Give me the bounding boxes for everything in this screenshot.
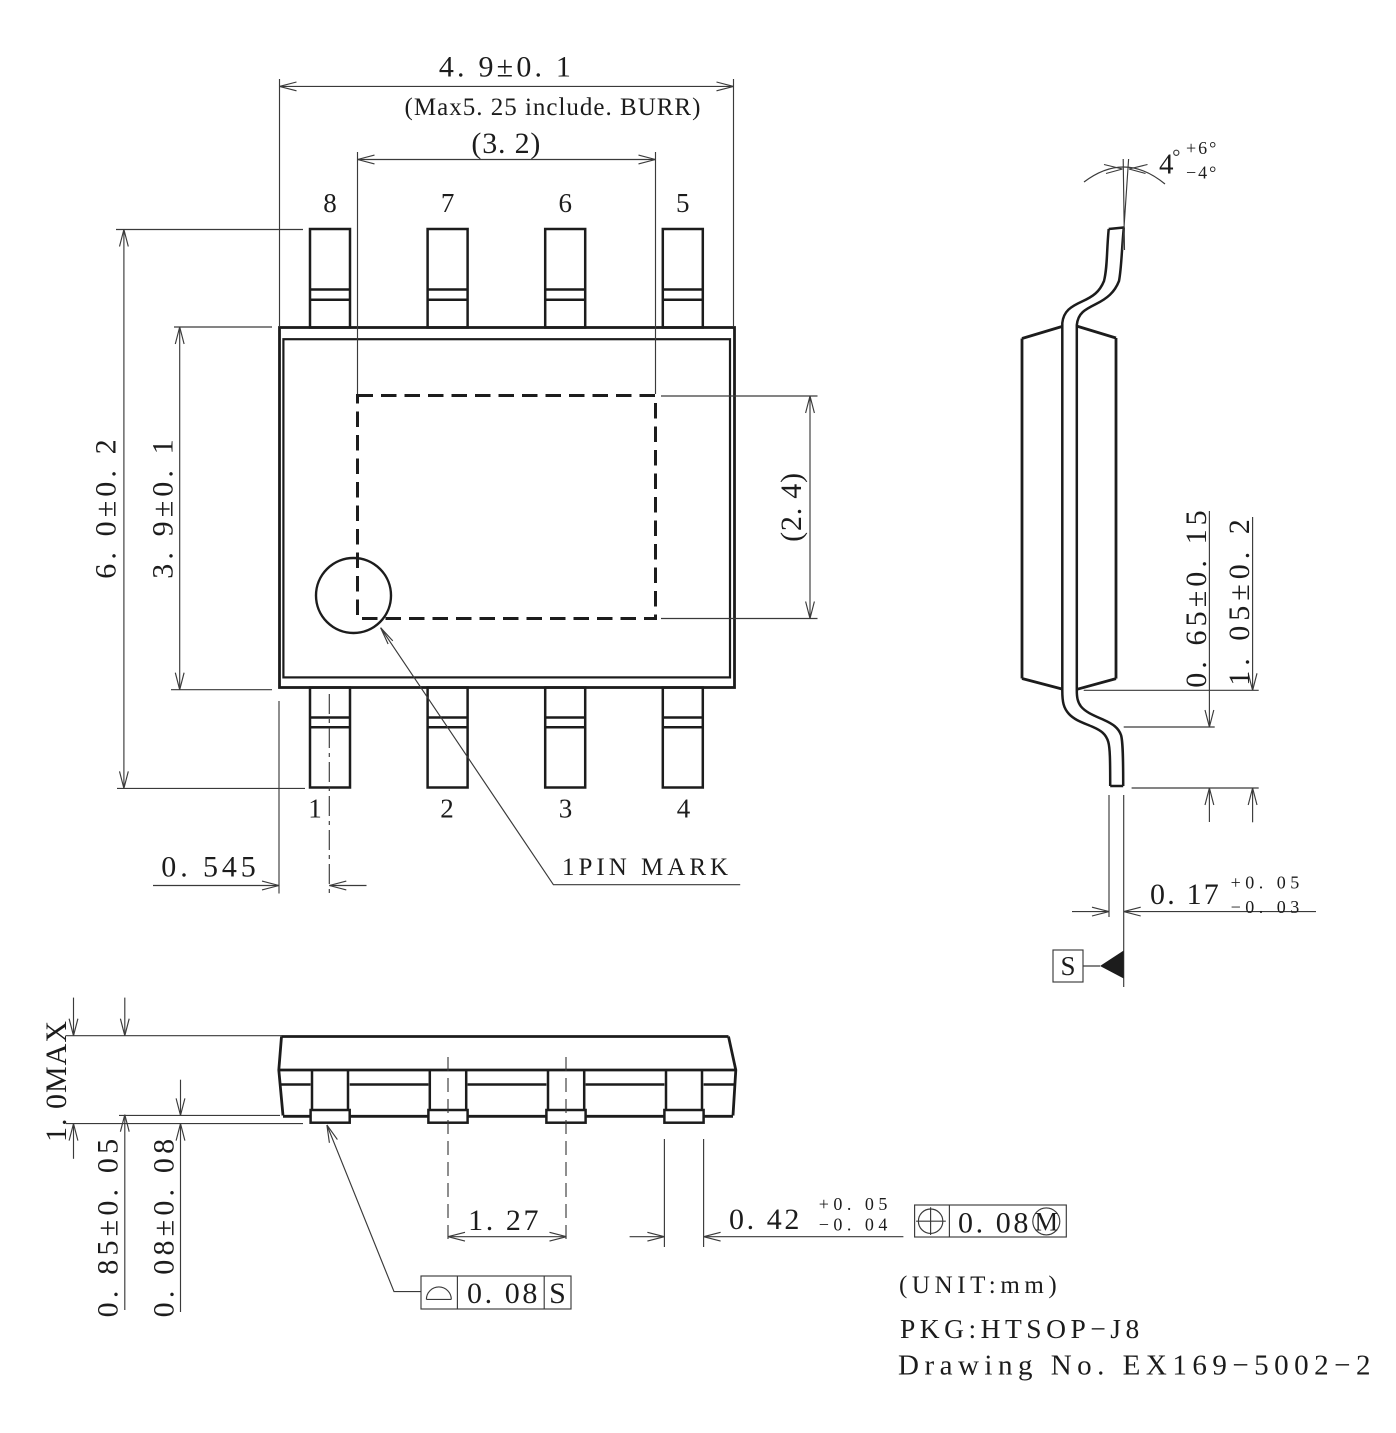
svg-text:−0. 03: −0. 03 (1231, 897, 1304, 917)
svg-text:0. 08±0. 08: 0. 08±0. 08 (148, 1135, 181, 1318)
svg-text:M: M (1035, 1207, 1059, 1237)
svg-text:PKG:HTSOP−J8: PKG:HTSOP−J8 (900, 1313, 1144, 1344)
svg-text:0. 65±0. 15: 0. 65±0. 15 (1180, 506, 1213, 688)
svg-text:−0. 04: −0. 04 (819, 1215, 892, 1235)
svg-text:Drawing No. EX169−5002−2: Drawing No. EX169−5002−2 (898, 1350, 1376, 1382)
svg-text:4: 4 (1159, 149, 1174, 181)
svg-text:1PIN MARK: 1PIN MARK (562, 854, 732, 881)
svg-text:3: 3 (559, 794, 573, 824)
svg-text:0. 17: 0. 17 (1150, 878, 1221, 911)
svg-text:8: 8 (323, 188, 337, 218)
svg-text:(3. 2): (3. 2) (471, 127, 541, 160)
svg-text:7: 7 (441, 188, 455, 218)
svg-text:+6°: +6° (1186, 138, 1218, 158)
svg-text:4: 4 (677, 794, 691, 824)
svg-text:6: 6 (558, 188, 572, 218)
svg-text:+0. 05: +0. 05 (819, 1194, 892, 1214)
svg-text:0. 08: 0. 08 (958, 1206, 1031, 1239)
svg-text:S: S (1060, 951, 1075, 981)
svg-text:1. 27: 1. 27 (468, 1204, 541, 1237)
svg-text:1. 0MAX: 1. 0MAX (40, 1020, 73, 1142)
svg-text:4. 9±0. 1: 4. 9±0. 1 (439, 51, 574, 84)
svg-text:1: 1 (308, 794, 322, 824)
svg-text:S: S (549, 1277, 566, 1310)
svg-text:5: 5 (676, 188, 690, 218)
svg-text:(Max5. 25 include. BURR): (Max5. 25 include. BURR) (405, 94, 702, 121)
svg-text:0. 08: 0. 08 (467, 1277, 540, 1310)
svg-text:−4°: −4° (1186, 163, 1218, 183)
svg-text:(UNIT:mm): (UNIT:mm) (899, 1272, 1061, 1299)
svg-text:(2. 4): (2. 4) (775, 472, 808, 542)
svg-text:3. 9±0. 1: 3. 9±0. 1 (147, 435, 180, 578)
svg-text:6. 0±0. 2: 6. 0±0. 2 (90, 435, 123, 578)
svg-text:+0. 05: +0. 05 (1231, 873, 1304, 893)
svg-text:0. 545: 0. 545 (161, 851, 259, 884)
svg-text:1. 05±0. 2: 1. 05±0. 2 (1223, 514, 1256, 685)
svg-text:2: 2 (440, 794, 454, 824)
svg-text:0. 42: 0. 42 (729, 1203, 802, 1236)
svg-text:0. 85±0. 05: 0. 85±0. 05 (92, 1135, 125, 1318)
